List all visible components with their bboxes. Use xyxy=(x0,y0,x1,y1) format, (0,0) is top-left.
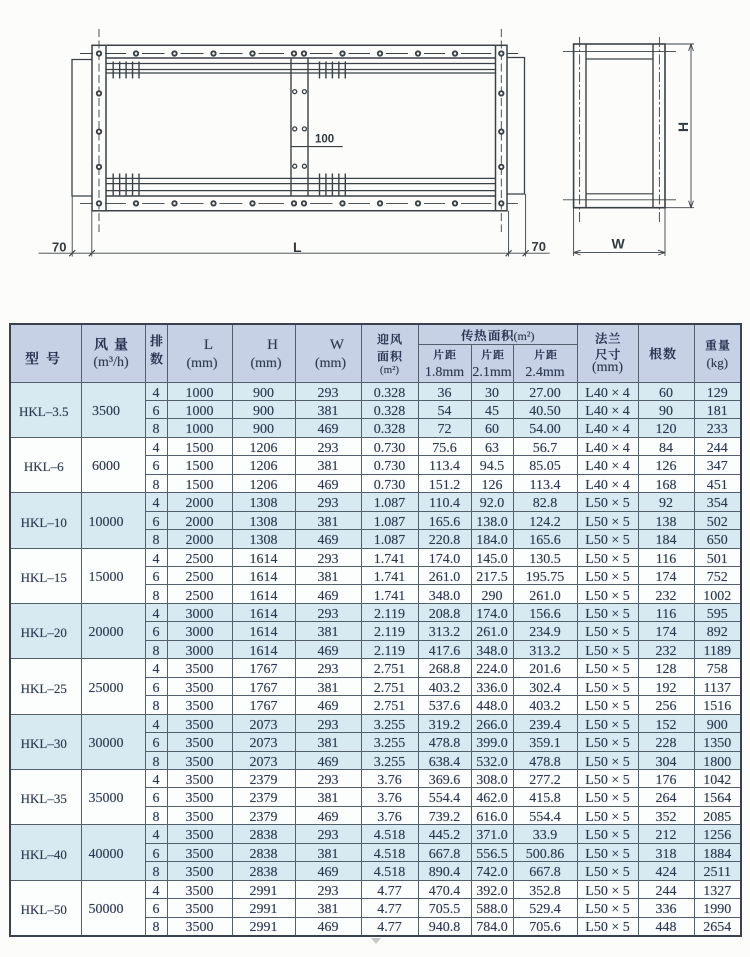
svg-text:H: H xyxy=(675,122,691,132)
svg-text:L: L xyxy=(293,239,302,255)
svg-text:70: 70 xyxy=(52,240,66,255)
svg-text:70: 70 xyxy=(532,239,546,254)
svg-text:W: W xyxy=(612,236,626,252)
svg-text:100: 100 xyxy=(315,134,334,146)
